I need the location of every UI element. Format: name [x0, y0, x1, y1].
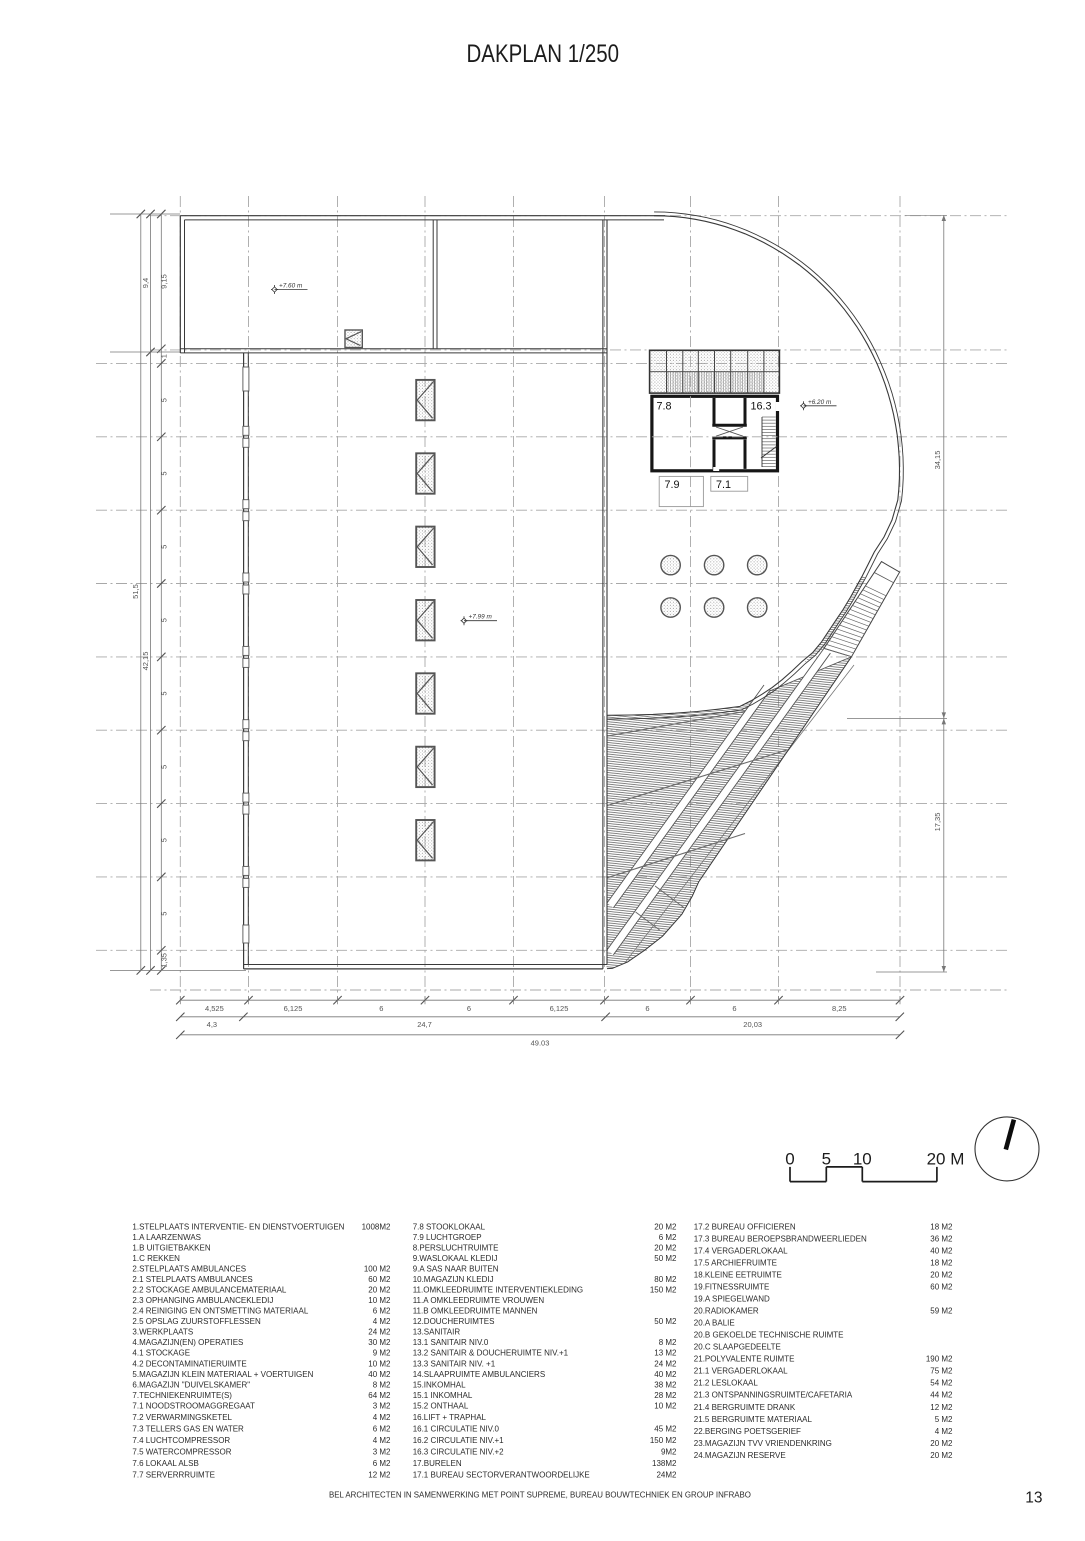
svg-text:1.B UITGIETBAKKEN: 1.B UITGIETBAKKEN — [132, 1244, 210, 1253]
svg-text:20,03: 20,03 — [743, 1020, 762, 1029]
svg-text:42,15: 42,15 — [141, 652, 150, 671]
svg-text:21.3 ONTSPANNINGSRUIMTE/CAFETA: 21.3 ONTSPANNINGSRUIMTE/CAFETARIA — [694, 1391, 853, 1400]
svg-text:8.PERSLUCHTRUIMTE: 8.PERSLUCHTRUIMTE — [413, 1244, 499, 1253]
svg-text:10 M2: 10 M2 — [368, 1296, 391, 1305]
svg-text:17.BURELEN: 17.BURELEN — [413, 1459, 462, 1468]
svg-text:2.5 OPSLAG ZUURSTOFFLESSEN: 2.5 OPSLAG ZUURSTOFFLESSEN — [132, 1317, 261, 1326]
svg-text:18 M2: 18 M2 — [930, 1222, 953, 1231]
svg-text:22.BERGING POETSGERIEF: 22.BERGING POETSGERIEF — [694, 1427, 801, 1436]
svg-text:20 M2: 20 M2 — [368, 1286, 391, 1295]
svg-text:7.TECHNIEKENRUIMTE(S): 7.TECHNIEKENRUIMTE(S) — [132, 1391, 232, 1400]
svg-text:20 M2: 20 M2 — [930, 1270, 953, 1279]
svg-text:6: 6 — [379, 1004, 383, 1013]
svg-text:16.1 CIRCULATIE NIV.0: 16.1 CIRCULATIE NIV.0 — [413, 1424, 500, 1433]
svg-text:6.MAGAZIJN "DUIVELSKAMER": 6.MAGAZIJN "DUIVELSKAMER" — [132, 1380, 250, 1389]
svg-text:21.1 VERGADERLOKAAL: 21.1 VERGADERLOKAAL — [694, 1367, 788, 1376]
svg-text:54 M2: 54 M2 — [930, 1379, 953, 1388]
svg-text:5: 5 — [159, 618, 168, 622]
svg-text:24.MAGAZIJN RESERVE: 24.MAGAZIJN RESERVE — [694, 1451, 786, 1460]
svg-text:6: 6 — [467, 1004, 471, 1013]
svg-text:5: 5 — [159, 398, 168, 402]
svg-text:18.KLEINE EETRUIMTE: 18.KLEINE EETRUIMTE — [694, 1270, 782, 1279]
svg-text:14.SLAAPRUIMTE AMBULANCIERS: 14.SLAAPRUIMTE AMBULANCIERS — [413, 1370, 545, 1379]
svg-text:5.MAGAZIJN KLEIN MATERIAAL + V: 5.MAGAZIJN KLEIN MATERIAAL + VOERTUIGEN — [132, 1370, 313, 1379]
svg-text:16.LIFT + TRAPHAL: 16.LIFT + TRAPHAL — [413, 1413, 487, 1422]
svg-text:6: 6 — [645, 1004, 649, 1013]
svg-text:1.STELPLAATS INTERVENTIE- EN D: 1.STELPLAATS INTERVENTIE- EN DIENSTVOERT… — [132, 1223, 344, 1232]
svg-text:11.B OMKLEEDRUIMTE MANNEN: 11.B OMKLEEDRUIMTE MANNEN — [413, 1307, 538, 1316]
svg-text:20 M2: 20 M2 — [654, 1244, 677, 1253]
svg-text:36 M2: 36 M2 — [930, 1234, 953, 1243]
svg-text:59 M2: 59 M2 — [930, 1307, 953, 1316]
svg-text:17.5 ARCHIEFRUIMTE: 17.5 ARCHIEFRUIMTE — [694, 1258, 777, 1267]
svg-text:16.3: 16.3 — [751, 401, 772, 413]
svg-text:20.B GEKOELDE TECHNISCHE RUIMT: 20.B GEKOELDE TECHNISCHE RUIMTE — [694, 1331, 844, 1340]
svg-text:12.DOUCHERUIMTES: 12.DOUCHERUIMTES — [413, 1317, 495, 1326]
svg-text:20 M: 20 M — [927, 1150, 965, 1169]
svg-text:3 M2: 3 M2 — [373, 1448, 391, 1457]
svg-text:20.RADIOKAMER: 20.RADIOKAMER — [694, 1307, 759, 1316]
svg-text:3 M2: 3 M2 — [373, 1401, 391, 1410]
svg-text:6: 6 — [732, 1004, 736, 1013]
svg-text:4,525: 4,525 — [205, 1004, 224, 1013]
svg-text:30 M2: 30 M2 — [368, 1338, 391, 1347]
svg-text:150 M2: 150 M2 — [650, 1286, 677, 1295]
svg-text:190 M2: 190 M2 — [926, 1355, 953, 1364]
svg-text:6 M2: 6 M2 — [373, 1459, 391, 1468]
svg-text:64 M2: 64 M2 — [368, 1391, 391, 1400]
svg-text:24 M2: 24 M2 — [654, 1359, 677, 1368]
svg-text:18 M2: 18 M2 — [930, 1258, 953, 1267]
svg-text:20.A BALIE: 20.A BALIE — [694, 1319, 735, 1328]
svg-text:8,25: 8,25 — [832, 1004, 847, 1013]
svg-text:9M2: 9M2 — [661, 1448, 677, 1457]
svg-text:17,35: 17,35 — [933, 813, 942, 832]
svg-text:9,15: 9,15 — [159, 274, 168, 289]
svg-text:40 M2: 40 M2 — [654, 1370, 677, 1379]
svg-text:8 M2: 8 M2 — [659, 1338, 677, 1347]
svg-text:34,15: 34,15 — [933, 451, 942, 470]
svg-text:6 M2: 6 M2 — [373, 1424, 391, 1433]
svg-text:10.MAGAZIJN KLEDIJ: 10.MAGAZIJN KLEDIJ — [413, 1275, 494, 1284]
svg-text:50 M2: 50 M2 — [654, 1317, 677, 1326]
svg-text:9.WASLOKAAL KLEDIJ: 9.WASLOKAAL KLEDIJ — [413, 1254, 498, 1263]
svg-text:20.C SLAAPGEDEELTE: 20.C SLAAPGEDEELTE — [694, 1343, 781, 1352]
svg-text:11.OMKLEEDRUIMTE INTERVENTIEKL: 11.OMKLEEDRUIMTE INTERVENTIEKLEDING — [413, 1286, 583, 1295]
svg-text:4.MAGAZIJN(EN) OPERATIES: 4.MAGAZIJN(EN) OPERATIES — [132, 1338, 243, 1347]
svg-text:6 M2: 6 M2 — [373, 1307, 391, 1316]
svg-text:38 M2: 38 M2 — [654, 1380, 677, 1389]
svg-text:7.8 STOOKLOKAAL: 7.8 STOOKLOKAAL — [413, 1223, 486, 1232]
svg-text:15.1 INKOMHAL: 15.1 INKOMHAL — [413, 1391, 473, 1400]
svg-text:4 M2: 4 M2 — [373, 1317, 391, 1326]
svg-text:5 M2: 5 M2 — [935, 1415, 953, 1424]
svg-text:10 M2: 10 M2 — [654, 1401, 677, 1410]
svg-text:21.4 BERGRUIMTE DRANK: 21.4 BERGRUIMTE DRANK — [694, 1403, 796, 1412]
svg-text:+7.60 m: +7.60 m — [279, 283, 303, 290]
svg-text:5: 5 — [159, 765, 168, 769]
svg-text:1.C REKKEN: 1.C REKKEN — [132, 1254, 180, 1263]
svg-text:20 M2: 20 M2 — [930, 1439, 953, 1448]
svg-text:BEL ARCHITECTEN IN SAMENWERKIN: BEL ARCHITECTEN IN SAMENWERKING MET POIN… — [329, 1490, 751, 1499]
svg-text:13.1 SANITAIR NIV.0: 13.1 SANITAIR NIV.0 — [413, 1338, 489, 1347]
svg-text:12 M2: 12 M2 — [930, 1403, 953, 1412]
svg-text:150 M2: 150 M2 — [650, 1436, 677, 1445]
svg-text:13.SANITAIR: 13.SANITAIR — [413, 1328, 461, 1337]
svg-text:12 M2: 12 M2 — [368, 1471, 391, 1480]
svg-text:19.A SPIEGELWAND: 19.A SPIEGELWAND — [694, 1295, 770, 1304]
svg-text:7.1 NOODSTROOMAGGREGAAT: 7.1 NOODSTROOMAGGREGAAT — [132, 1401, 255, 1410]
svg-text:7.5 WATERCOMPRESSOR: 7.5 WATERCOMPRESSOR — [132, 1448, 231, 1457]
svg-text:4 M2: 4 M2 — [373, 1413, 391, 1422]
svg-text:75 M2: 75 M2 — [930, 1367, 953, 1376]
svg-text:40 M2: 40 M2 — [368, 1370, 391, 1379]
svg-text:17.2 BUREAU OFFICIEREN: 17.2 BUREAU OFFICIEREN — [694, 1222, 796, 1231]
svg-text:24 M2: 24 M2 — [368, 1328, 391, 1337]
svg-text:138M2: 138M2 — [652, 1459, 677, 1468]
svg-text:17.3 BUREAU BEROEPSBRANDWEERLI: 17.3 BUREAU BEROEPSBRANDWEERLIEDEN — [694, 1234, 867, 1243]
svg-text:16.2 CIRCULATIE NIV.+1: 16.2 CIRCULATIE NIV.+1 — [413, 1436, 504, 1445]
svg-text:2.STELPLAATS AMBULANCES: 2.STELPLAATS AMBULANCES — [132, 1265, 246, 1274]
svg-text:13.3 SANITAIR NIV. +1: 13.3 SANITAIR NIV. +1 — [413, 1359, 496, 1368]
svg-text:5: 5 — [159, 471, 168, 475]
svg-text:100 M2: 100 M2 — [364, 1265, 391, 1274]
svg-text:4 M2: 4 M2 — [373, 1436, 391, 1445]
svg-text:5: 5 — [822, 1150, 831, 1169]
svg-text:21.5 BERGRUIMTE MATERIAAL: 21.5 BERGRUIMTE MATERIAAL — [694, 1415, 813, 1424]
svg-text:80 M2: 80 M2 — [654, 1275, 677, 1284]
svg-text:5: 5 — [159, 838, 168, 842]
svg-text:23.MAGAZIJN TVV VRIENDENKRING: 23.MAGAZIJN TVV VRIENDENKRING — [694, 1439, 832, 1448]
svg-text:13: 13 — [1025, 1489, 1042, 1506]
svg-text:9 M2: 9 M2 — [373, 1349, 391, 1358]
svg-text:15.2 ONTHAAL: 15.2 ONTHAAL — [413, 1401, 469, 1410]
svg-text:24M2: 24M2 — [656, 1471, 677, 1480]
svg-text:21.2 LESLOKAAL: 21.2 LESLOKAAL — [694, 1379, 759, 1388]
svg-text:1,35: 1,35 — [159, 953, 168, 968]
svg-text:1008M2: 1008M2 — [362, 1223, 391, 1232]
svg-text:49.03: 49.03 — [531, 1038, 550, 1047]
svg-text:50 M2: 50 M2 — [654, 1254, 677, 1263]
svg-text:5: 5 — [159, 691, 168, 695]
svg-text:17.1 BUREAU SECTORVERANTWOORDE: 17.1 BUREAU SECTORVERANTWOORDELIJKE — [413, 1471, 590, 1480]
svg-text:1.A LAARZENWAS: 1.A LAARZENWAS — [132, 1233, 201, 1242]
svg-text:11.A OMKLEEDRUIMTE VROUWEN: 11.A OMKLEEDRUIMTE VROUWEN — [413, 1296, 545, 1305]
svg-text:7.9: 7.9 — [665, 479, 680, 491]
svg-text:19.FITNESSRUIMTE: 19.FITNESSRUIMTE — [694, 1283, 770, 1292]
svg-text:DAKPLAN 1/250: DAKPLAN 1/250 — [467, 40, 620, 68]
svg-text:5: 5 — [159, 912, 168, 916]
svg-text:17.4 VERGADERLOKAAL: 17.4 VERGADERLOKAAL — [694, 1246, 788, 1255]
svg-text:2.2 STOCKAGE AMBULANCEMATERIAA: 2.2 STOCKAGE AMBULANCEMATERIAAL — [132, 1286, 287, 1295]
svg-text:60 M2: 60 M2 — [930, 1283, 953, 1292]
svg-text:4.2 DECONTAMINATIERUIMTE: 4.2 DECONTAMINATIERUIMTE — [132, 1359, 246, 1368]
svg-text:20 M2: 20 M2 — [654, 1223, 677, 1232]
svg-text:45 M2: 45 M2 — [654, 1424, 677, 1433]
svg-text:4 M2: 4 M2 — [935, 1427, 953, 1436]
svg-text:4,3: 4,3 — [207, 1020, 217, 1029]
svg-text:7.3 TELLERS GAS EN WATER: 7.3 TELLERS GAS EN WATER — [132, 1424, 244, 1433]
svg-text:3.WERKPLAATS: 3.WERKPLAATS — [132, 1328, 193, 1337]
svg-text:28 M2: 28 M2 — [654, 1391, 677, 1400]
svg-text:8 M2: 8 M2 — [373, 1380, 391, 1389]
svg-text:7.6 LOKAAL ALSB: 7.6 LOKAAL ALSB — [132, 1459, 198, 1468]
svg-text:13 M2: 13 M2 — [654, 1349, 677, 1358]
svg-text:4.1 STOCKAGE: 4.1 STOCKAGE — [132, 1349, 190, 1358]
svg-text:7.1: 7.1 — [716, 479, 731, 491]
svg-text:2.1 STELPLAATS AMBULANCES: 2.1 STELPLAATS AMBULANCES — [132, 1275, 252, 1284]
svg-text:15.INKOMHAL: 15.INKOMHAL — [413, 1380, 466, 1389]
svg-text:20 M2: 20 M2 — [930, 1451, 953, 1460]
svg-text:13.2 SANITAIR & DOUCHERUIMTE: 13.2 SANITAIR & DOUCHERUIMTE NIV.+1 — [413, 1349, 569, 1358]
svg-text:2.3 OPHANGING AMBULANCEKLEDIJ: 2.3 OPHANGING AMBULANCEKLEDIJ — [132, 1296, 273, 1305]
svg-text:7.4 LUCHTCOMPRESSOR: 7.4 LUCHTCOMPRESSOR — [132, 1436, 230, 1445]
svg-text:9,4: 9,4 — [141, 278, 150, 288]
svg-text:6 M2: 6 M2 — [659, 1233, 677, 1242]
svg-text:51,5: 51,5 — [131, 584, 140, 599]
svg-text:6,125: 6,125 — [284, 1004, 303, 1013]
svg-text:10: 10 — [853, 1150, 872, 1169]
svg-text:0: 0 — [785, 1150, 794, 1169]
svg-text:2.4 REINIGING EN ONTSMETTING M: 2.4 REINIGING EN ONTSMETTING MATERIAAL — [132, 1307, 308, 1316]
svg-text:+6.20 m: +6.20 m — [808, 399, 832, 406]
svg-text:1: 1 — [159, 354, 168, 358]
svg-text:5: 5 — [159, 545, 168, 549]
svg-text:60 M2: 60 M2 — [368, 1275, 391, 1284]
svg-text:7.9 LUCHTGROEP: 7.9 LUCHTGROEP — [413, 1233, 482, 1242]
svg-text:44 M2: 44 M2 — [930, 1391, 953, 1400]
svg-text:6,125: 6,125 — [550, 1004, 569, 1013]
svg-text:16.3 CIRCULATIE NIV.+2: 16.3 CIRCULATIE NIV.+2 — [413, 1448, 504, 1457]
svg-text:40 M2: 40 M2 — [930, 1246, 953, 1255]
svg-text:7.2 VERWARMINGSKETEL: 7.2 VERWARMINGSKETEL — [132, 1413, 232, 1422]
svg-text:9.A SAS NAAR BUITEN: 9.A SAS NAAR BUITEN — [413, 1265, 499, 1274]
svg-text:+7.99 m: +7.99 m — [469, 614, 493, 621]
svg-text:24,7: 24,7 — [417, 1020, 432, 1029]
svg-text:21.POLYVALENTE RUIMTE: 21.POLYVALENTE RUIMTE — [694, 1355, 795, 1364]
svg-text:10 M2: 10 M2 — [368, 1359, 391, 1368]
svg-text:7.8: 7.8 — [657, 401, 672, 413]
svg-text:7.7 SERVERRRUIMTE: 7.7 SERVERRRUIMTE — [132, 1471, 215, 1480]
